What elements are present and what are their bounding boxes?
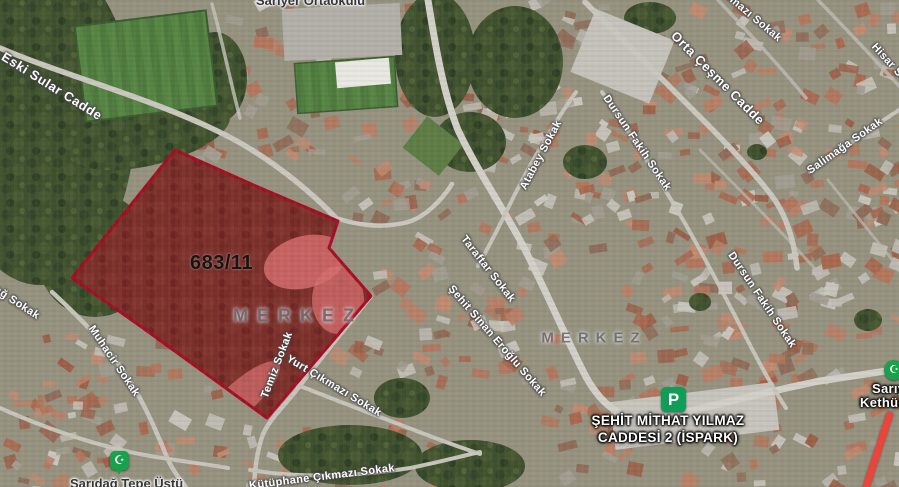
mosque-marker-icon[interactable]: ☪ [110, 451, 129, 470]
map-canvas[interactable]: Eski Sular Cadde ılmazı Sokak Orta Çeşme… [0, 0, 899, 487]
kethuda-mosque-marker-icon[interactable]: ☪ [884, 360, 899, 380]
satellite-imagery [0, 0, 899, 487]
crescent-star-icon: ☪ [110, 452, 129, 469]
parking-marker-icon[interactable]: P [661, 387, 686, 412]
